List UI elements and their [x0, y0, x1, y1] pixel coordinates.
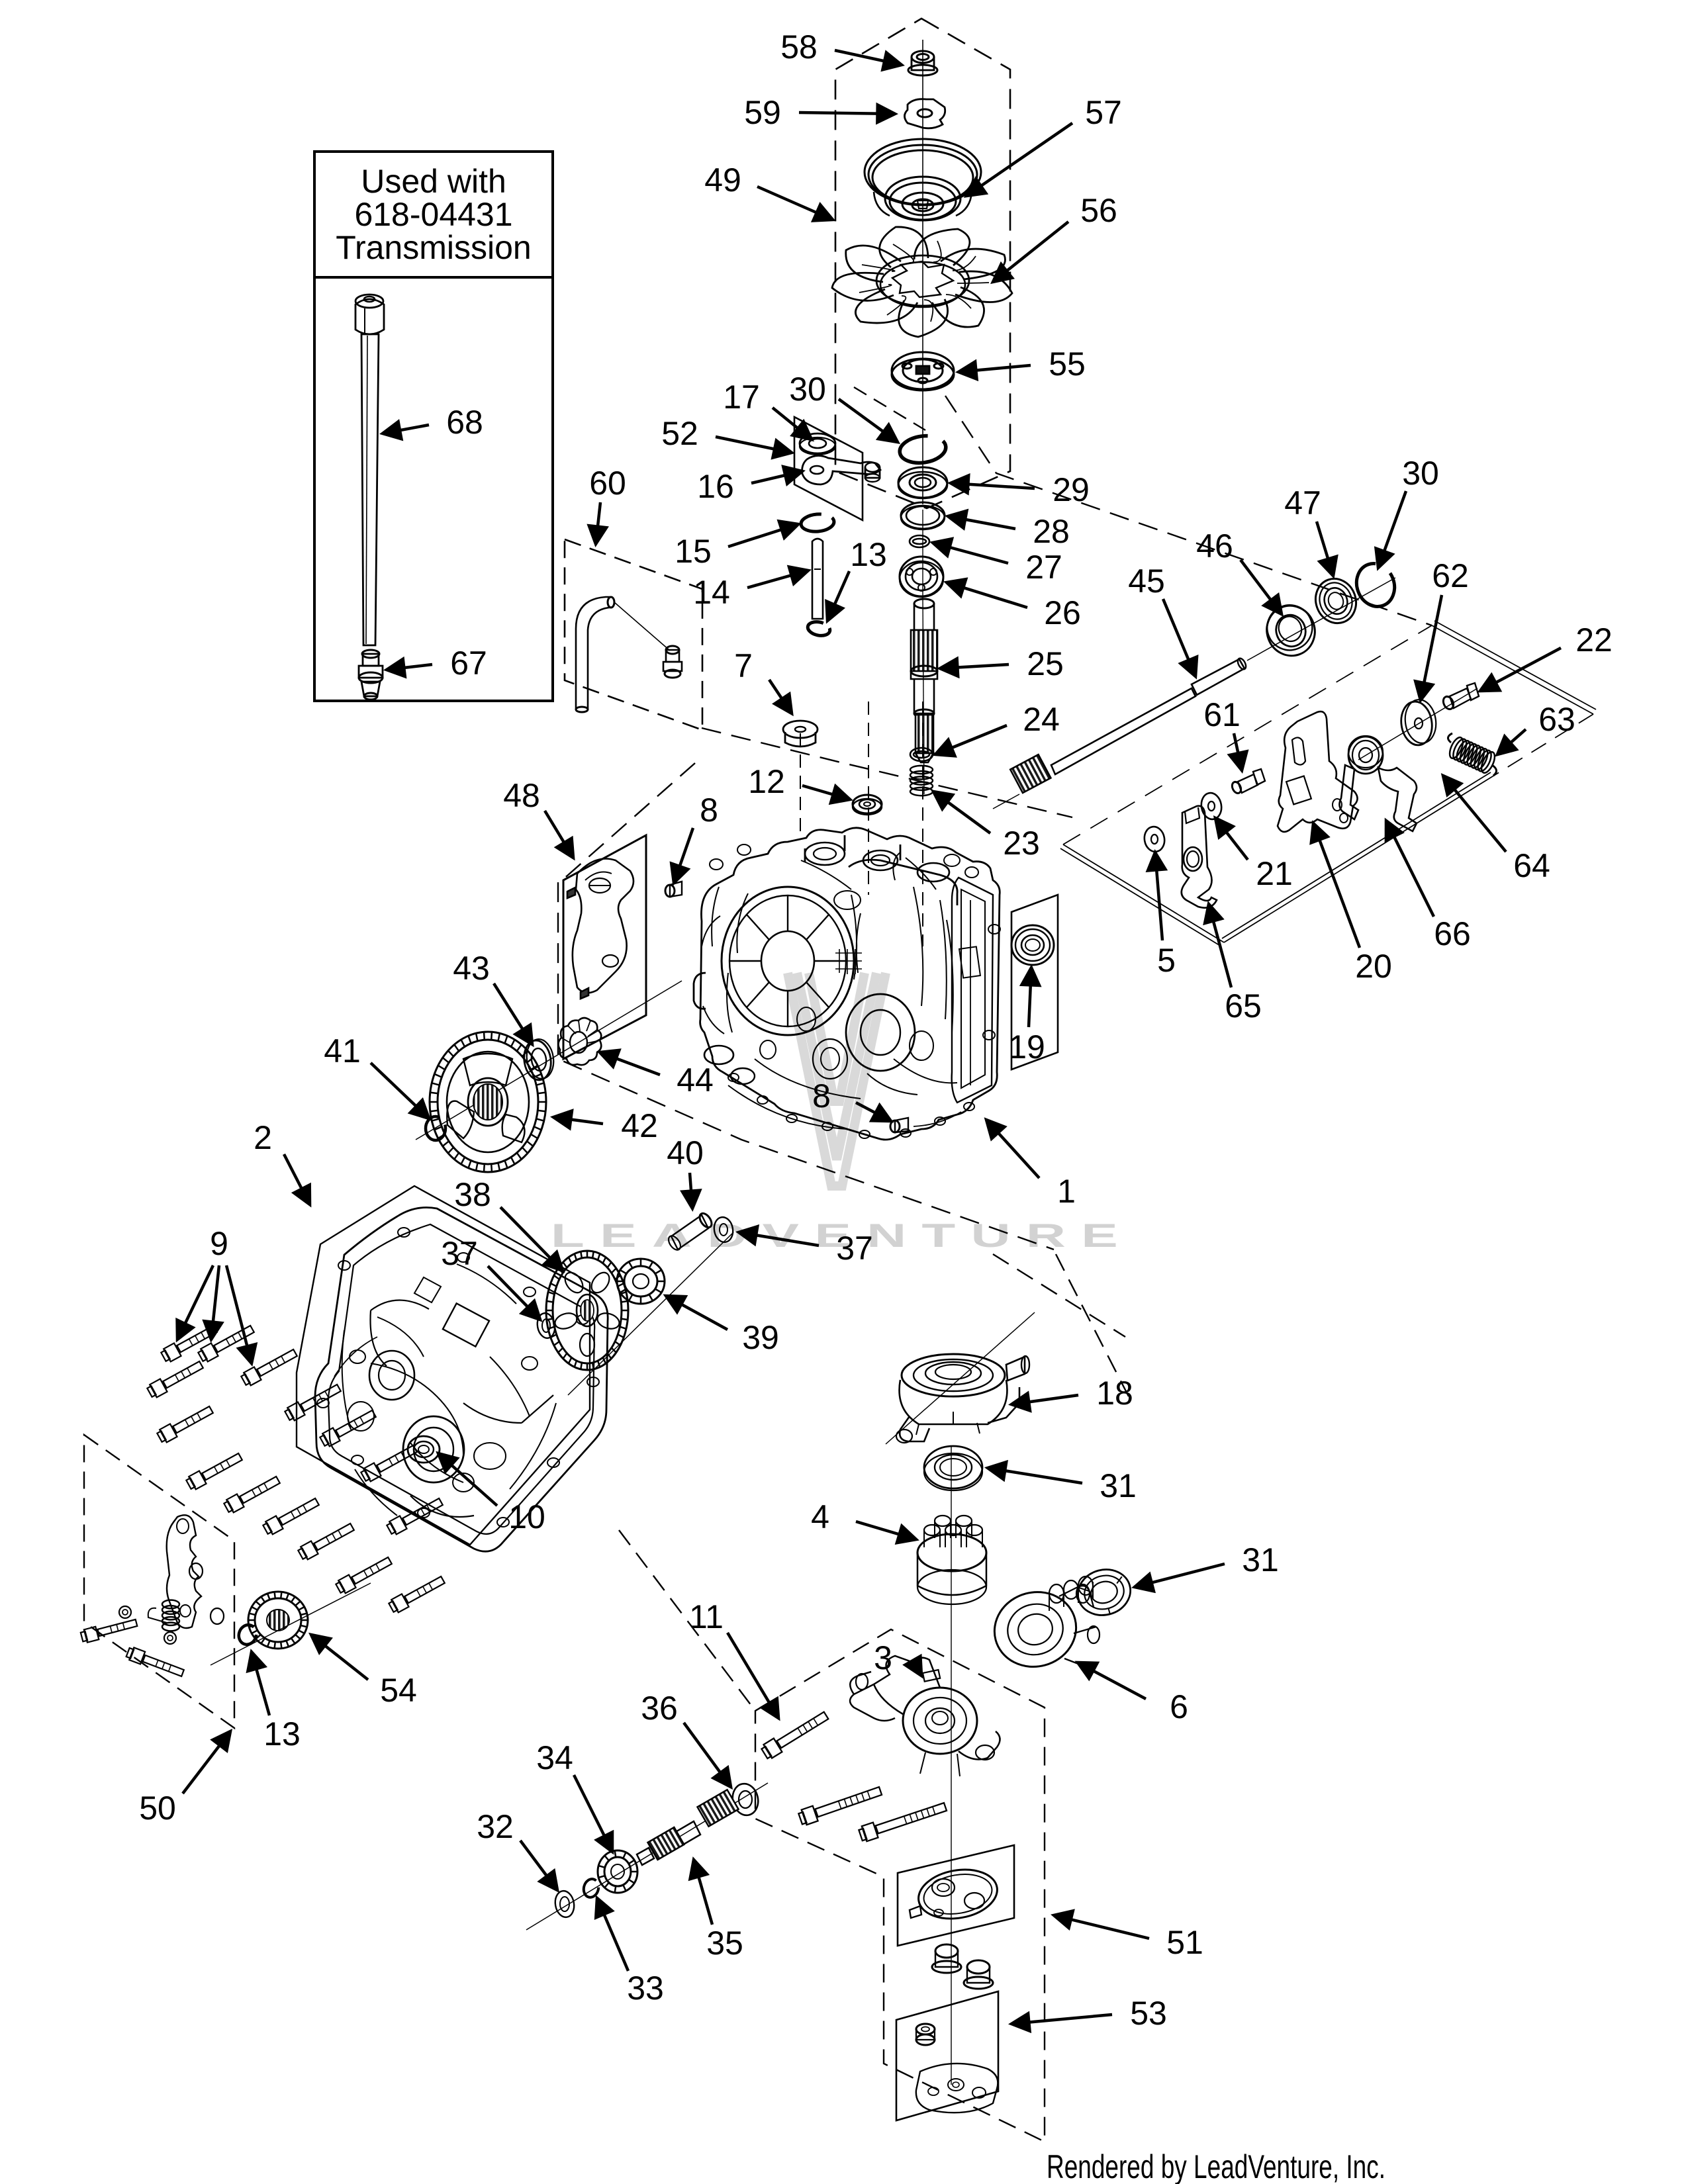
svg-text:45: 45: [1128, 563, 1165, 600]
svg-text:47: 47: [1284, 484, 1321, 522]
svg-text:48: 48: [503, 777, 540, 814]
svg-text:6: 6: [1170, 1688, 1188, 1725]
svg-text:65: 65: [1225, 987, 1262, 1024]
svg-text:Used with: Used with: [361, 163, 506, 200]
svg-text:53: 53: [1130, 1995, 1167, 2032]
svg-text:24: 24: [1023, 701, 1060, 738]
svg-text:12: 12: [748, 763, 785, 800]
svg-text:31: 31: [1242, 1541, 1279, 1578]
svg-text:56: 56: [1080, 192, 1117, 229]
svg-text:33: 33: [627, 1970, 664, 2007]
svg-text:Rendered by LeadVenture, Inc.: Rendered by LeadVenture, Inc.: [1047, 2148, 1385, 2184]
svg-text:63: 63: [1538, 701, 1575, 738]
svg-text:49: 49: [704, 161, 741, 199]
svg-text:22: 22: [1575, 621, 1613, 659]
svg-text:50: 50: [139, 1790, 176, 1827]
svg-text:7: 7: [734, 647, 753, 684]
svg-text:31: 31: [1100, 1467, 1137, 1504]
svg-text:19: 19: [1008, 1028, 1045, 1066]
svg-text:51: 51: [1166, 1924, 1203, 1961]
svg-text:17: 17: [723, 379, 760, 416]
svg-text:26: 26: [1044, 594, 1081, 631]
svg-text:3: 3: [874, 1639, 892, 1676]
svg-text:4: 4: [811, 1498, 829, 1535]
svg-text:46: 46: [1196, 527, 1233, 565]
svg-text:29: 29: [1053, 471, 1090, 508]
svg-text:10: 10: [508, 1498, 545, 1535]
svg-text:16: 16: [697, 468, 734, 505]
svg-text:2: 2: [254, 1119, 272, 1156]
svg-text:25: 25: [1027, 645, 1064, 682]
svg-text:44: 44: [677, 1062, 714, 1099]
svg-text:20: 20: [1355, 948, 1392, 985]
svg-text:61: 61: [1203, 696, 1241, 733]
svg-text:59: 59: [744, 94, 781, 131]
svg-text:30: 30: [789, 371, 826, 408]
svg-text:8: 8: [812, 1077, 831, 1115]
svg-text:40: 40: [667, 1134, 704, 1171]
svg-text:21: 21: [1256, 855, 1293, 892]
svg-text:5: 5: [1157, 942, 1176, 979]
svg-text:37: 37: [441, 1235, 478, 1272]
svg-text:27: 27: [1025, 549, 1062, 586]
svg-text:58: 58: [780, 28, 818, 66]
svg-text:9: 9: [210, 1225, 228, 1262]
svg-text:62: 62: [1432, 557, 1469, 594]
svg-text:68: 68: [446, 404, 483, 441]
svg-text:54: 54: [380, 1672, 417, 1709]
svg-text:18: 18: [1096, 1375, 1133, 1412]
svg-text:1: 1: [1057, 1173, 1076, 1210]
svg-text:13: 13: [850, 536, 887, 573]
svg-text:15: 15: [675, 533, 712, 570]
svg-text:30: 30: [1402, 455, 1439, 492]
svg-text:55: 55: [1049, 345, 1086, 383]
svg-text:28: 28: [1033, 513, 1070, 550]
svg-text:60: 60: [589, 465, 626, 502]
svg-text:57: 57: [1085, 94, 1122, 131]
svg-text:11: 11: [689, 1598, 724, 1635]
svg-text:66: 66: [1434, 915, 1471, 952]
svg-text:35: 35: [706, 1925, 743, 1962]
svg-text:618-04431: 618-04431: [354, 196, 512, 233]
svg-text:23: 23: [1003, 825, 1040, 862]
svg-text:Transmission: Transmission: [336, 229, 531, 266]
svg-text:42: 42: [621, 1107, 658, 1144]
svg-text:39: 39: [742, 1319, 779, 1356]
svg-text:13: 13: [263, 1715, 301, 1752]
svg-text:52: 52: [661, 415, 698, 452]
svg-text:64: 64: [1513, 847, 1550, 884]
svg-text:8: 8: [700, 792, 718, 829]
svg-text:67: 67: [450, 645, 487, 682]
svg-text:38: 38: [454, 1176, 491, 1213]
svg-text:32: 32: [477, 1808, 514, 1845]
svg-text:36: 36: [641, 1690, 678, 1727]
svg-text:41: 41: [324, 1032, 361, 1069]
svg-text:43: 43: [453, 950, 490, 987]
svg-text:37: 37: [836, 1230, 873, 1267]
svg-text:14: 14: [693, 574, 730, 611]
svg-text:34: 34: [536, 1739, 573, 1776]
